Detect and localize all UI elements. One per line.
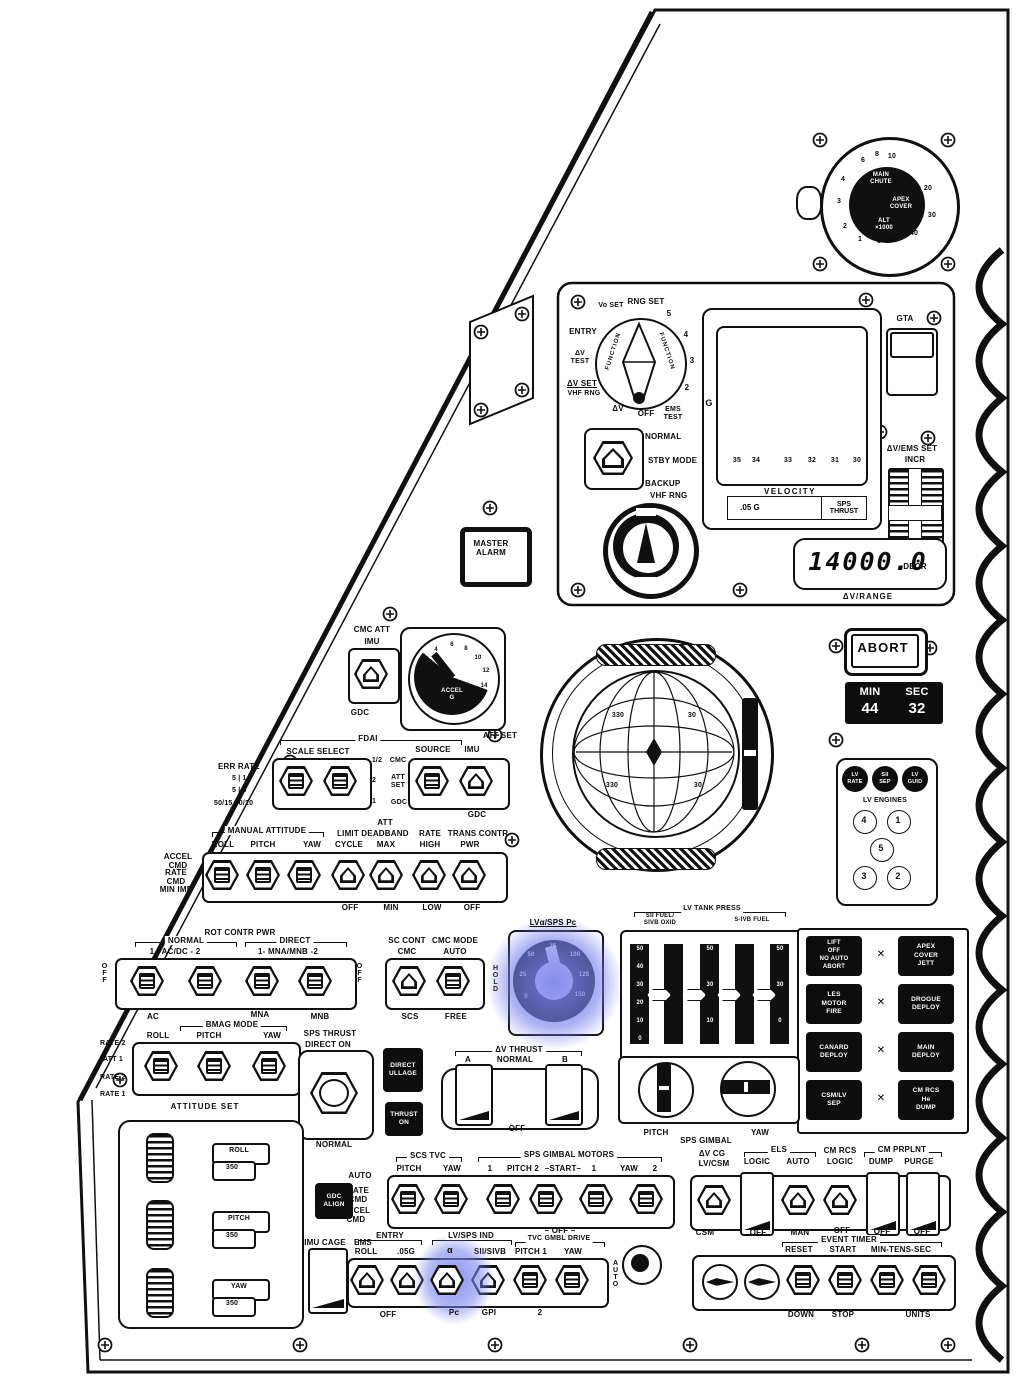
rot-pwr-normal2-switch[interactable]: [188, 966, 222, 996]
ems-pos-rng-set: RNG SET: [628, 297, 665, 306]
units-label: UNITS: [906, 1310, 931, 1319]
x-link-icon: ✕: [877, 950, 885, 960]
ems-pos-vhf-rng: VHF RNG: [568, 390, 601, 398]
attset-imu-label: IMU: [464, 745, 479, 754]
man-att-pitch-switch[interactable]: [246, 860, 280, 890]
lv-rate-light: LV RATE: [842, 766, 868, 792]
free-label: FREE: [445, 1012, 467, 1021]
clock-min-label: MIN: [860, 686, 881, 699]
dv-range-value: 14000.0: [808, 548, 927, 577]
cmc-att-imu-label: IMU: [364, 637, 379, 646]
yaw-counter-value: 350: [226, 1300, 238, 1308]
alt-tick: 6: [861, 157, 865, 165]
lv-csm-label: LV/CSM: [699, 1159, 730, 1168]
timer-units-switch[interactable]: [912, 1265, 946, 1295]
pc-tick: 100: [570, 952, 581, 959]
vel-tick: 31: [831, 457, 839, 465]
incr-label: INCR: [905, 455, 925, 464]
entry-ems-label: EMS: [354, 1238, 372, 1247]
ems-mode-backup: BACKUP: [645, 479, 680, 488]
fdai-select-switch[interactable]: [323, 766, 357, 796]
alt-tick: 20: [924, 185, 932, 193]
hold-label: HOLD: [492, 965, 499, 993]
alt-tick: 30: [928, 212, 936, 220]
altimeter-label-apex-cover: APEX COVER: [890, 197, 912, 211]
down-label: DOWN: [788, 1310, 814, 1319]
lv-eng-num: 5: [878, 843, 883, 853]
tank-tick: 30: [706, 982, 713, 989]
drive-auto-label: AUTO: [612, 1260, 619, 1288]
csm-label: CSM: [696, 1228, 714, 1237]
vel-tick: 32: [808, 457, 816, 465]
05g-label: .05G: [397, 1247, 415, 1256]
dv-range-label: ΔV/RANGE: [843, 592, 893, 601]
tank-sii-label: SII FUEL/ SIVB OXID: [644, 913, 676, 927]
scale-mid-2: 2: [372, 777, 376, 785]
els-auto-switch[interactable]: [781, 1185, 815, 1215]
att-set-switch[interactable]: [459, 766, 493, 796]
deadband-label: DEADBAND: [361, 829, 408, 838]
imu-cage-switch[interactable]: [308, 1248, 348, 1314]
sps-gimbal-label: SPS GIMBAL: [680, 1136, 732, 1145]
limit-cycle-switch[interactable]: [331, 860, 365, 890]
ems-roll-switch[interactable]: [350, 1265, 384, 1295]
accel-tick: 14: [480, 683, 487, 690]
dv-cg-switch[interactable]: [697, 1185, 731, 1215]
yaw-thumbwheel[interactable]: [146, 1268, 174, 1318]
tank-tick: 0: [778, 1018, 782, 1025]
man-att-pitch: PITCH: [251, 840, 276, 849]
err-rate-1: 5 | 1: [232, 775, 247, 783]
scs-tvc-hdr: SCS TVC: [407, 1151, 449, 1160]
ems-pos-4: 4: [684, 330, 689, 339]
purge-label: PURGE: [904, 1157, 933, 1166]
alt-tick: 50: [889, 237, 897, 245]
csm-lv-sep-button[interactable]: CSM/LV SEP: [806, 1080, 862, 1120]
velocity-label: VELOCITY: [764, 487, 816, 496]
ems-pos-ems-test: EMS TEST: [664, 406, 683, 422]
trans-off-label: OFF: [464, 903, 481, 912]
man-att-roll-switch[interactable]: [205, 860, 239, 890]
roll-window-label: ROLL: [229, 1147, 249, 1155]
tank-hdr: LV TANK PRESS: [681, 905, 743, 913]
sc-cmc-label: CMC: [398, 947, 417, 956]
rate-cmd-label: RATE CMD: [165, 868, 187, 886]
man-att-yaw-switch[interactable]: [287, 860, 321, 890]
tvc-drive-pitch-switch[interactable]: [513, 1265, 547, 1295]
sc-cont-switch[interactable]: [392, 966, 426, 996]
dv-thrust-b-switch[interactable]: [545, 1064, 583, 1126]
roll-counter-value: 350: [226, 1164, 238, 1172]
vel-tick: 34: [752, 457, 760, 465]
alt-tick: 1: [858, 236, 862, 244]
rate-switch[interactable]: [412, 860, 446, 890]
scs-tvc-pitch-switch[interactable]: [391, 1184, 425, 1214]
lvsps-ind-hdr: LV/SPS IND: [445, 1231, 497, 1240]
round-guard-button-core: [631, 1254, 649, 1272]
rot-pwr-direct1-switch[interactable]: [245, 966, 279, 996]
trans-contr-pwr-switch[interactable]: [452, 860, 486, 890]
bmag-rate2-a: RATE 2: [100, 1040, 126, 1048]
scs-label: SCS: [401, 1012, 418, 1021]
altimeter-label-alt: ALT ×1000: [875, 218, 893, 232]
cycle-label: CYCLE: [335, 840, 363, 849]
tvc-rate-cmd-label: RATE CMD: [347, 1186, 369, 1204]
bmag-rate2-b: RATE 2: [100, 1074, 126, 1082]
gta-label: GTA: [897, 314, 914, 323]
pc-label: Pc: [449, 1308, 459, 1317]
direct-on-label: DIRECT ON: [305, 1040, 351, 1049]
ems-pos-dv: ΔV: [612, 404, 624, 413]
entry-hdr: ENTRY: [373, 1231, 407, 1240]
ems-pos-entry: ENTRY: [569, 327, 597, 336]
limit-label: LIMIT: [337, 829, 359, 838]
rot-pwr-direct2-switch[interactable]: [298, 966, 332, 996]
limit-off-label: OFF: [342, 903, 359, 912]
err-rate-3: 50/15 50/10: [214, 800, 253, 808]
drive-pitch-label: PITCH 1: [515, 1247, 547, 1256]
mnamnb-label: 1- MNA/MNB -2: [258, 947, 318, 956]
ems-pos-dv-test: ΔV TEST: [571, 350, 590, 366]
tvc-pitch-label: PITCH: [397, 1164, 422, 1173]
motors-1a: 1: [488, 1164, 493, 1173]
alt-tick: 10: [888, 153, 896, 161]
drive-yaw-label: YAW: [564, 1247, 582, 1256]
gpi-yaw-index: [744, 1082, 748, 1092]
cmc-mode-switch[interactable]: [436, 966, 470, 996]
main-deploy-button[interactable]: MAIN DEPLOY: [898, 1032, 954, 1072]
timer-slew-switch-2[interactable]: [744, 1264, 780, 1300]
tank-tick: 20: [636, 1000, 643, 1007]
man-att-hdr: MANUAL ATTITUDE: [225, 826, 309, 835]
gimbal-pitch-label: PITCH: [644, 1128, 669, 1137]
scs-tvc-yaw-switch[interactable]: [434, 1184, 468, 1214]
fdai-hdr: FDAI: [355, 734, 380, 743]
motors-2: 2: [653, 1164, 658, 1173]
ems-pos-dv-set: ΔV SET: [567, 379, 597, 388]
man-att-yaw: YAW: [303, 840, 321, 849]
tvc-accel-cmd-label: ACCEL CMD: [342, 1206, 371, 1224]
les-motor-fire-button[interactable]: LES MOTOR FIRE: [806, 984, 862, 1024]
alt-tick: 40: [910, 230, 918, 238]
rot-contr-hdr: ROT CONTR PWR: [204, 928, 275, 937]
apollo-main-panel-diagram: 1 2 3 4 6 8 10 20 30 40 50 0 MAIN CHUTE …: [0, 0, 1017, 1380]
sps-thrust-normal-label: NORMAL: [316, 1140, 352, 1149]
ems-pos-5: 5: [667, 309, 672, 318]
min-imp-label: MIN IMP: [160, 885, 193, 894]
yaw-window-label: YAW: [231, 1283, 247, 1291]
alt-tick: 2: [843, 223, 847, 231]
attset-gdc-label: GDC: [468, 810, 486, 819]
imu-cage-label: IMU CAGE: [304, 1238, 346, 1247]
ems-mode-vhf: VHF RNG: [650, 491, 687, 500]
accel-tick: 6: [450, 642, 454, 649]
fdai-rate-pointer: [744, 750, 756, 756]
acdc-label: 1 - AC/DC - 2: [150, 947, 201, 956]
sps-thrust-lever[interactable]: [310, 1072, 358, 1114]
gimbal-motor-pitch1-switch[interactable]: [486, 1184, 520, 1214]
clock-min-value: 44: [861, 700, 878, 717]
els-logic-label: LOGIC: [744, 1157, 770, 1166]
timer-reset-switch[interactable]: [786, 1265, 820, 1295]
els-hdr: ELS: [768, 1145, 790, 1154]
x-link-icon: ✕: [877, 998, 885, 1008]
rate-label: RATE: [419, 829, 441, 838]
els-logic-switch[interactable]: [740, 1172, 774, 1236]
dv-ems-set-label: ΔV/EMS SET: [887, 444, 937, 453]
event-timer-hdr: EVENT TIMER: [818, 1235, 880, 1244]
bmag-roll-switch[interactable]: [144, 1051, 178, 1081]
cm-prplnt-hdr: CM PRPLNT: [875, 1145, 929, 1154]
timer-start-switch[interactable]: [828, 1265, 862, 1295]
cm-rcs-he-dump-button[interactable]: CM RCS He DUMP: [898, 1080, 954, 1120]
gimbal-motor-yaw1-switch[interactable]: [579, 1184, 613, 1214]
fdai-source-switch[interactable]: [415, 766, 449, 796]
sii-sep-light: SII SEP: [872, 766, 898, 792]
timer-slew-switch-1[interactable]: [702, 1264, 738, 1300]
deadband-min-label: MIN: [383, 903, 398, 912]
accel-tick: 4: [434, 647, 438, 654]
accel-tick: 2: [423, 657, 427, 664]
sii-sivb-gpi-switch[interactable]: [471, 1265, 505, 1295]
bmag-pitch-switch[interactable]: [197, 1051, 231, 1081]
att-deadband-switch[interactable]: [369, 860, 403, 890]
ems-pos-2: 2: [685, 383, 690, 392]
rot-off-right: OFF: [356, 963, 363, 984]
dv-cg-label: ΔV CG: [699, 1149, 725, 1158]
cm-rcs-label: CM RCS: [824, 1146, 857, 1155]
tank-tick: 50: [706, 946, 713, 953]
dump-label: DUMP: [869, 1157, 893, 1166]
lv-eng-num: 4: [861, 815, 866, 825]
source-label: SOURCE: [415, 745, 450, 754]
gimbal-motor-yaw2-switch[interactable]: [629, 1184, 663, 1214]
bmag-yaw: YAW: [263, 1031, 281, 1040]
motors-off-label: – OFF –: [545, 1226, 576, 1235]
src-col-cmc: CMC: [390, 757, 407, 765]
ems-mode-normal: NORMAL: [645, 432, 681, 441]
rate-low-label: LOW: [422, 903, 441, 912]
ems-pos-off: OFF: [638, 409, 655, 418]
pc-tick: 125: [579, 972, 590, 979]
dv-thrust-b: B: [562, 1055, 568, 1064]
thrust-on-button[interactable]: THRUST ON: [385, 1102, 423, 1136]
man-label: MAN: [791, 1228, 810, 1237]
attitude-set-label: ATTITUDE SET: [171, 1102, 240, 1111]
gimbal-motor-pitch2-switch[interactable]: [529, 1184, 563, 1214]
dv-thrust-hdr: ΔV THRUST: [492, 1045, 546, 1054]
rot-direct-label: DIRECT: [277, 936, 314, 945]
lv-eng-num: 1: [895, 815, 900, 825]
master-alarm-label: MASTER ALARM: [474, 539, 509, 557]
high-label: HIGH: [420, 840, 441, 849]
cmc-auto-label: AUTO: [443, 947, 466, 956]
lv-eng-num: 2: [895, 871, 900, 881]
vel-tick: 30: [853, 457, 861, 465]
alt-tick: 4: [841, 176, 845, 184]
scale-select-label: SCALE SELECT: [286, 747, 349, 756]
lv-sps-alpha-pc-switch[interactable]: [430, 1265, 464, 1295]
accel-tick: 8: [464, 646, 468, 653]
vel-tick: 35: [733, 457, 741, 465]
accel-tick: 12: [482, 668, 489, 675]
accel-tick: 0: [417, 670, 421, 677]
alpha-label: α: [447, 1245, 453, 1255]
lv-engines-label: LV ENGINES: [863, 797, 907, 805]
purge-off-label: OFF: [914, 1227, 931, 1236]
logic-off-label: OFF: [750, 1228, 767, 1237]
lv-guid-light: LV GUID: [902, 766, 928, 792]
gimbal-motors-hdr: SPS GIMBAL MOTORS: [521, 1150, 617, 1159]
pc-tick: 50: [527, 952, 534, 959]
lift-off-no-auto-abort-button[interactable]: LIFT OFF NO AUTO ABORT: [806, 936, 862, 976]
rot-off-left: OFF: [101, 963, 108, 984]
err-rate-2: 5 | 5: [232, 787, 247, 795]
rot-pwr-normal1-switch[interactable]: [130, 966, 164, 996]
src-col-attset: ATT SET: [391, 774, 405, 790]
sii-sivb-label: SII/SIVB: [474, 1247, 506, 1256]
rot-normal-label: NORMAL: [165, 936, 207, 945]
timer-tens-switch[interactable]: [870, 1265, 904, 1295]
sps-thrust-label: SPS THRUST: [304, 1029, 357, 1038]
trans-contr-label: TRANS CONTR: [448, 829, 508, 838]
altimeter-label-main-chute: MAIN CHUTE: [870, 172, 892, 186]
bmag-hdr: BMAG MODE: [203, 1020, 261, 1029]
g-axis-label: G: [705, 398, 712, 408]
dv-thrust-normal: NORMAL: [497, 1055, 533, 1064]
gpi-label: GPI: [482, 1308, 496, 1317]
cmc-att-label: CMC ATT: [354, 625, 391, 634]
cm-rcs-logic-label: LOGIC: [827, 1157, 853, 1166]
bmag-roll: ROLL: [147, 1031, 170, 1040]
tank-tick: 50: [776, 946, 783, 953]
cmc-att-gdc-label: GDC: [351, 708, 369, 717]
pwr-label: PWR: [460, 840, 479, 849]
bmag-att1: ATT 1: [103, 1056, 123, 1064]
x-link-icon: ✕: [877, 1046, 885, 1056]
alt-tick: 0: [877, 238, 881, 246]
motors-start: –START–: [545, 1164, 581, 1173]
drogue-deploy-button[interactable]: DROGUE DEPLOY: [898, 984, 954, 1024]
fdai-bottom-shade: [596, 848, 716, 870]
dv-thrust-off-label: –OFF–: [504, 1124, 530, 1133]
canard-deploy-button[interactable]: CANARD DEPLOY: [806, 1032, 862, 1072]
direct-ullage-button[interactable]: DIRECT ULLAGE: [383, 1048, 423, 1092]
clock-sec-label: SEC: [905, 686, 928, 699]
man-att-roll: ROLL: [212, 840, 235, 849]
motors-1b: 1: [592, 1164, 597, 1173]
tank-tick: 10: [706, 1018, 713, 1025]
pc-tick: 150: [575, 992, 586, 999]
pitch-window-label: PITCH: [228, 1215, 250, 1223]
x-link-icon: ✕: [877, 1094, 885, 1104]
tank-scale-1: [630, 944, 649, 1044]
roll-thumbwheel[interactable]: [146, 1133, 174, 1183]
dv-thrust-a-switch[interactable]: [455, 1064, 493, 1126]
pc-gauge-title: LVα/SPS Pc: [530, 918, 577, 927]
apex-cover-jett-button[interactable]: APEX COVER JETT: [898, 936, 954, 976]
fdai-scale-switch[interactable]: [279, 766, 313, 796]
tank-tick: 40: [636, 964, 643, 971]
err-rate-label: ERR RATE: [218, 762, 260, 771]
att-set-label: ATT SET: [483, 731, 517, 740]
els-auto-label: AUTO: [786, 1157, 809, 1166]
tvc-drive-yaw-switch[interactable]: [555, 1265, 589, 1295]
tvc-yaw-label: YAW: [443, 1164, 461, 1173]
ems-roll-label: ROLL: [355, 1247, 378, 1256]
bmag-rate1: RATE 1: [100, 1091, 126, 1099]
start-label: START: [829, 1245, 856, 1254]
max-label: MAX: [377, 840, 395, 849]
ac-label: AC: [147, 1012, 159, 1021]
sc-cont-label: SC CONT: [388, 936, 425, 945]
src-col-gdc: GDC: [391, 799, 407, 807]
gpi-pitch-index: [659, 1086, 669, 1090]
clock-sec-value: 32: [908, 700, 925, 717]
alt-tick: 8: [875, 151, 879, 159]
motors-yaw: YAW: [620, 1164, 638, 1173]
bmag-pitch: PITCH: [197, 1031, 222, 1040]
cmc-mode-label: CMC MODE: [432, 936, 478, 945]
fdai-num: 330: [612, 712, 624, 720]
bmag-yaw-switch[interactable]: [252, 1051, 286, 1081]
ems-roll-top-index: [636, 508, 656, 516]
scale-mid-3: 1: [372, 798, 376, 806]
mna-label: MNA: [251, 1010, 270, 1019]
min-tens-sec-label: MIN-TENS-SEC: [871, 1245, 931, 1254]
scale-mid-1: 1/2: [372, 757, 382, 765]
ems-mode-stby: STBY MODE: [648, 456, 697, 465]
05g-switch[interactable]: [390, 1265, 424, 1295]
gimbal-yaw-label: YAW: [751, 1128, 769, 1137]
cm-rcs-logic-switch[interactable]: [823, 1185, 857, 1215]
ems-pos-vo-set: Vo SET: [598, 302, 623, 310]
tank-tick: 30: [636, 982, 643, 989]
pc-tick: 0: [524, 994, 528, 1001]
rcs-off-label: OFF: [834, 1226, 851, 1235]
stop-label: STOP: [832, 1310, 854, 1319]
accel-tick: 16: [476, 694, 483, 701]
accel-tick: 10: [474, 655, 481, 662]
tank-sivb-label: S-IVB FUEL: [734, 917, 769, 924]
tvc-drive-hdr: TVC GMBL DRIVE: [526, 1235, 593, 1243]
tvc-auto-label: AUTO: [348, 1171, 371, 1180]
dv-thrust-a: A: [465, 1055, 471, 1064]
fdai-num: 30: [688, 712, 696, 720]
ems-roll-bottom-index: [636, 577, 656, 585]
lv-eng-num: 3: [861, 871, 866, 881]
tank-tick: 10: [636, 1018, 643, 1025]
pitch-counter-value: 350: [226, 1232, 238, 1240]
pc-tick: 25: [519, 972, 526, 979]
mnb-label: MNB: [311, 1012, 330, 1021]
alt-tick: 3: [837, 198, 841, 206]
ems-pos-3: 3: [690, 356, 695, 365]
tank-tick: 0: [638, 1036, 642, 1043]
fdai-num: 330: [606, 782, 618, 790]
pitch-thumbwheel[interactable]: [146, 1200, 174, 1250]
abort-label: ABORT: [857, 641, 908, 656]
motors-pitch2: PITCH 2: [507, 1164, 539, 1173]
tank-tick: 50: [636, 946, 643, 953]
tank-tick: 30: [776, 982, 783, 989]
reset-label: RESET: [785, 1245, 813, 1254]
pc-tick: 75: [549, 944, 556, 951]
lvsps-bracket: [432, 1240, 512, 1245]
fdai-top-shade: [596, 644, 716, 666]
att-label: ATT: [377, 818, 393, 827]
drive-2-label: 2: [538, 1308, 543, 1317]
